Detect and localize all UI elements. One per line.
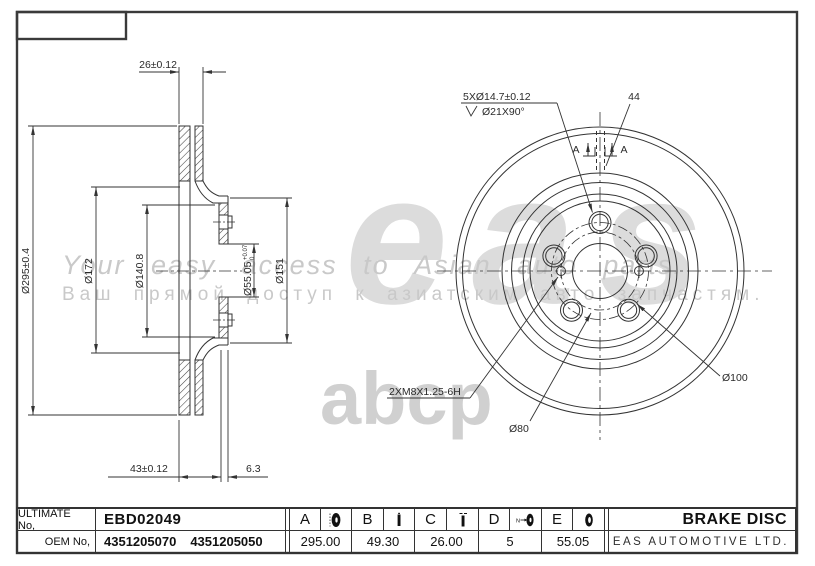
leader-lines: [387, 103, 720, 421]
disc-diameter-icon: [325, 512, 347, 528]
revision-box: [17, 12, 126, 39]
front-view-labels: 5XØ14.7±0.12 Ø21X90° 44 A A 2XM8X1.25-6H…: [389, 91, 748, 435]
dim-value-d: 5: [479, 531, 542, 552]
dim-letter-a: A: [290, 509, 321, 531]
ultimate-no-value: EBD02049: [96, 509, 286, 531]
countersink-symbol: [466, 106, 477, 116]
dim-outer-diameter: Ø295±0.4: [20, 248, 32, 294]
brake-disc-drawing: 26±0.12 Ø295±0.4 Ø172 Ø140.8 Ø55.05 +0.0…: [0, 0, 815, 566]
company-name: EAS AUTOMOTIVE LTD.: [609, 531, 795, 552]
section-mark-left: A: [572, 144, 579, 156]
dim-flange-thickness: 6.3: [246, 463, 261, 475]
plate-inboard-bottom: [179, 360, 190, 415]
disc-height-icon: [388, 512, 410, 528]
dim-thickness: 26±0.12: [139, 59, 177, 71]
oem-no-1: 4351205070: [104, 534, 176, 549]
oem-no-2: 4351205050: [190, 534, 262, 549]
slot-width-dim: 44: [628, 91, 640, 103]
title-block: ULTIMATE No, EBD02049 A B C D: [16, 507, 797, 554]
dim-172: Ø172: [83, 258, 95, 284]
dim-letter-c: C: [415, 509, 447, 531]
oem-no-value: 4351205070 4351205050: [96, 531, 286, 552]
dim-value-c: 26.00: [415, 531, 479, 552]
dim-value-e: 55.05: [542, 531, 605, 552]
center-bore-icon: [578, 512, 600, 528]
dim-icon-cell: [573, 509, 605, 531]
dim-icon-cell: [321, 509, 352, 531]
dia-100-label: Ø100: [722, 372, 748, 384]
bolt-holes-spec: 5XØ14.7±0.12: [463, 91, 531, 103]
drawing-sheet: eas abcp Your easy access to Asian auto …: [0, 0, 815, 566]
dim-151: Ø151: [274, 258, 286, 284]
dim-bore-tol-lower: 0: [250, 256, 256, 260]
dim-bore-tol-upper: +0.07: [243, 244, 249, 260]
plate-outboard-top: [195, 126, 203, 181]
dim-bore: Ø55.05: [242, 261, 254, 296]
dim-140-8: Ø140.8: [134, 254, 146, 289]
ultimate-no-label: ULTIMATE No,: [18, 509, 96, 531]
disc-thickness-icon: [452, 512, 474, 528]
countersink-spec: Ø21X90°: [482, 106, 525, 118]
dim-height: 43±0.12: [130, 463, 168, 475]
dim-icon-cell: [384, 509, 415, 531]
section-dimension-labels: 26±0.12 Ø295±0.4 Ø172 Ø140.8 Ø55.05 +0.0…: [20, 59, 286, 475]
product-title: BRAKE DISC: [609, 509, 795, 531]
plate-outboard-bottom: [195, 360, 203, 415]
dia-80-label: Ø80: [509, 423, 529, 435]
dim-letter-d: D: [479, 509, 510, 531]
oem-no-label: OEM No,: [18, 531, 96, 552]
dim-value-b: 49.30: [352, 531, 415, 552]
section-mark-right: A: [620, 144, 627, 156]
dim-value-a: 295.00: [290, 531, 352, 552]
dim-letter-b: B: [352, 509, 384, 531]
hole-count-icon: N: [515, 512, 537, 528]
thread-holes-spec: 2XM8X1.25-6H: [389, 386, 461, 398]
dim-letter-e: E: [542, 509, 573, 531]
dim-icon-cell: N: [510, 509, 542, 531]
top-slot-hidden-lines: [597, 131, 605, 172]
plate-inboard-top: [179, 126, 190, 181]
svg-text:N: N: [516, 518, 520, 524]
dim-icon-cell: [447, 509, 479, 531]
